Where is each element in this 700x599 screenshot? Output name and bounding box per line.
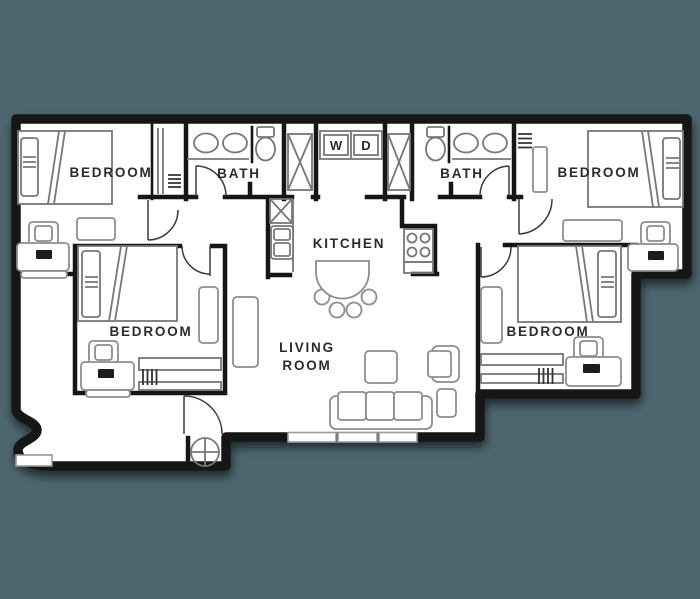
bedroom-bottom-right-label: BEDROOM	[506, 324, 589, 339]
living-room-windows	[288, 433, 417, 443]
toilet-icon	[256, 127, 275, 161]
window	[288, 433, 336, 443]
dining-chair-icon	[362, 290, 377, 305]
entry-sidelight-window	[16, 455, 52, 466]
floorplan-svg: BEDROOM BATH W D	[0, 0, 700, 599]
toilet-icon	[426, 127, 445, 161]
dining-chair-icon	[347, 303, 362, 318]
living-room-label-line2: ROOM	[282, 358, 331, 373]
window	[338, 433, 377, 443]
armchair-icon	[428, 346, 459, 382]
sofa-icon	[330, 392, 432, 429]
bed-icon	[518, 246, 621, 322]
dresser-icon	[563, 220, 622, 241]
bedroom-top-left-label: BEDROOM	[69, 165, 152, 180]
fridge-icon	[271, 226, 293, 259]
entry-round-table-icon	[191, 438, 219, 466]
side-table-icon	[437, 389, 456, 417]
bedroom-bottom-left-label: BEDROOM	[109, 324, 192, 339]
bath-left-label: BATH	[217, 166, 261, 181]
dryer-label: D	[361, 138, 370, 153]
dining-chair-icon	[330, 303, 345, 318]
dresser-icon	[199, 287, 218, 343]
tv-console-icon	[233, 297, 258, 367]
floorplan-page: BEDROOM BATH W D	[0, 0, 700, 599]
kitchen-label: KITCHEN	[313, 236, 386, 251]
bedroom-top-right-label: BEDROOM	[557, 165, 640, 180]
coffee-table-icon	[365, 351, 397, 383]
bath-right-label: BATH	[440, 166, 484, 181]
dresser-icon	[77, 218, 115, 240]
window	[379, 433, 417, 443]
wardrobe-icon	[481, 287, 502, 343]
living-room-label-line1: LIVING	[279, 340, 335, 355]
bed-icon	[78, 246, 177, 321]
washer-label: W	[330, 138, 343, 153]
